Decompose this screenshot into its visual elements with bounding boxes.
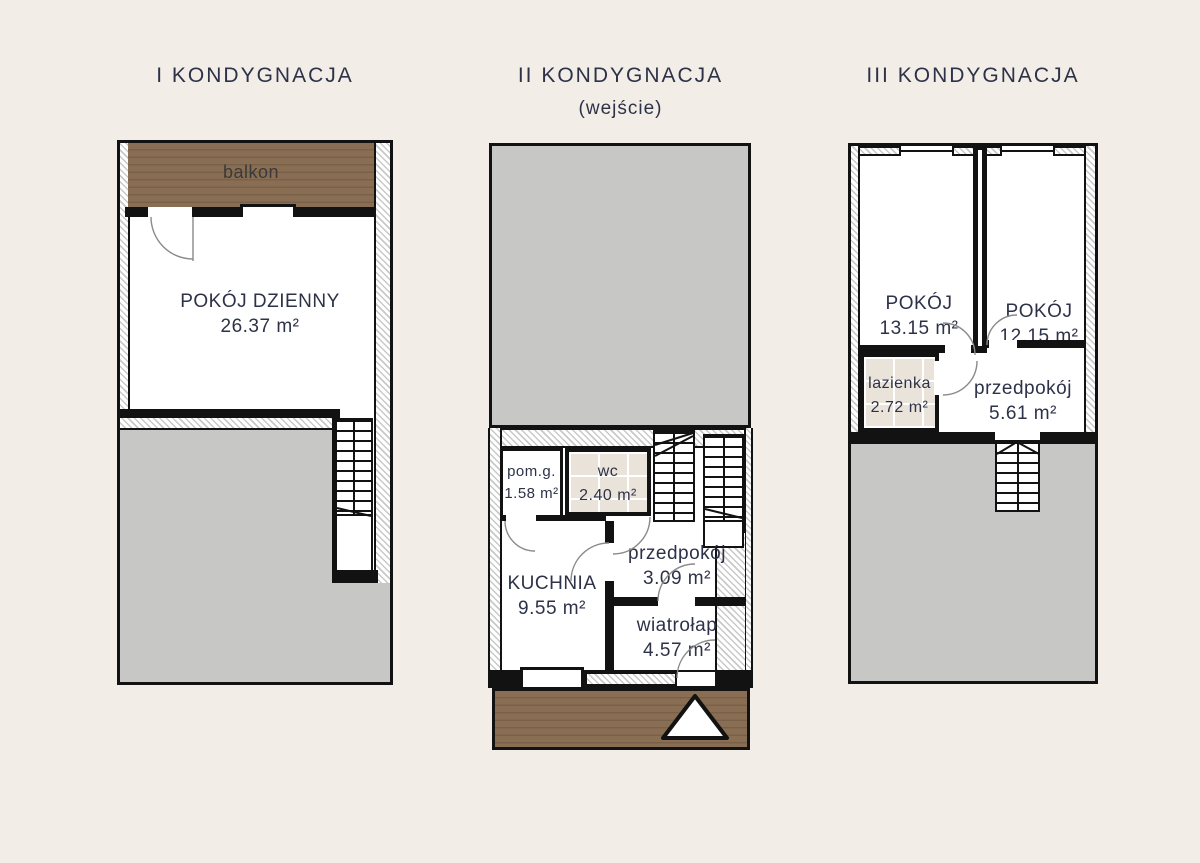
staircase-flight-up [653,430,695,522]
room-area: 4.57 m² [614,638,740,663]
wall [332,570,378,583]
kuchnia-label: KUCHNIA 9.55 m² [502,571,602,621]
wall [851,432,1095,444]
neighbor-unit-area [335,583,390,682]
wall [851,146,860,443]
room-name: POKÓJ [886,293,953,314]
wall [120,418,335,430]
przedpokoj-3-label: przedpokój 5.61 m² [948,376,1098,426]
pom-g-label: pom.g. 1.58 m² [501,461,562,505]
room-name: KUCHNIA [507,573,596,594]
room-name: wiatrołap [637,615,718,636]
pokoj-dzienny-label: POKÓJ DZIENNY 26.37 m² [140,289,380,339]
staircase-flight-down [703,434,744,522]
room-name: POKÓJ [1006,301,1073,322]
entrance-terrace [492,688,750,750]
room-area: 13.15 m² [865,316,973,341]
room-area: 2.40 m² [567,484,649,508]
neighbor-unit-area [120,430,335,682]
door-opening [945,345,971,353]
floor-3-title: III KONDYGNACJA [848,64,1098,88]
room-area: 2.72 m² [861,396,938,420]
floor-2-title: II KONDYGNACJA [488,64,753,88]
door-opening [989,340,1017,348]
staircase [995,440,1040,512]
staircase [335,418,373,516]
wc-label: wc 2.40 m² [567,460,649,508]
room-name: POKÓJ DZIENNY [180,291,340,312]
room-name: pom.g. [507,463,556,480]
door-opening [658,597,695,606]
window [520,667,584,690]
room-name: przedpokój [628,543,726,564]
room-area: 9.55 m² [502,596,602,621]
floor-2-subtitle: (wejście) [488,98,753,120]
floor-1-plan: balkon POKÓJ DZIENNY 26.37 m² [117,140,393,685]
room-name: lazienka [868,375,931,392]
chimney-wall [973,146,987,353]
floor-2-plan: pom.g. 1.58 m² wc 2.40 m² przedpokój 3.0… [488,143,753,755]
room-area: 26.37 m² [140,314,380,339]
room-area: 3.09 m² [607,566,747,591]
neighbor-unit-area [489,143,751,428]
neighbor-unit-area [851,444,1095,681]
balkon-label: balkon [128,160,374,185]
floor-1-title: I KONDYGNACJA [117,64,393,88]
pokoj-1-label: POKÓJ 13.15 m² [865,291,973,341]
stair-landing [335,516,373,570]
wall [374,143,390,583]
floorplan-canvas: I KONDYGNACJA II KONDYGNACJA (wejście) I… [0,0,1200,863]
room-name: przedpokój [974,378,1072,399]
wall [587,674,675,684]
balcony-door-opening [148,207,192,217]
chimney-slit [978,150,982,346]
door-opening [506,515,536,521]
floor-3-plan: POKÓJ 13.15 m² POKÓJ 12.15 m² lazienka 2… [848,143,1098,684]
room-area: 5.61 m² [948,401,1098,426]
entrance-door-opening [677,672,715,686]
room-area: 1.58 m² [501,483,562,505]
przedpokoj-label: przedpokój 3.09 m² [607,541,747,591]
lazienka-label: lazienka 2.72 m² [861,372,938,420]
wiatrolap-label: wiatrołap 4.57 m² [614,613,740,663]
room-name: wc [598,463,619,480]
wall [120,409,340,418]
